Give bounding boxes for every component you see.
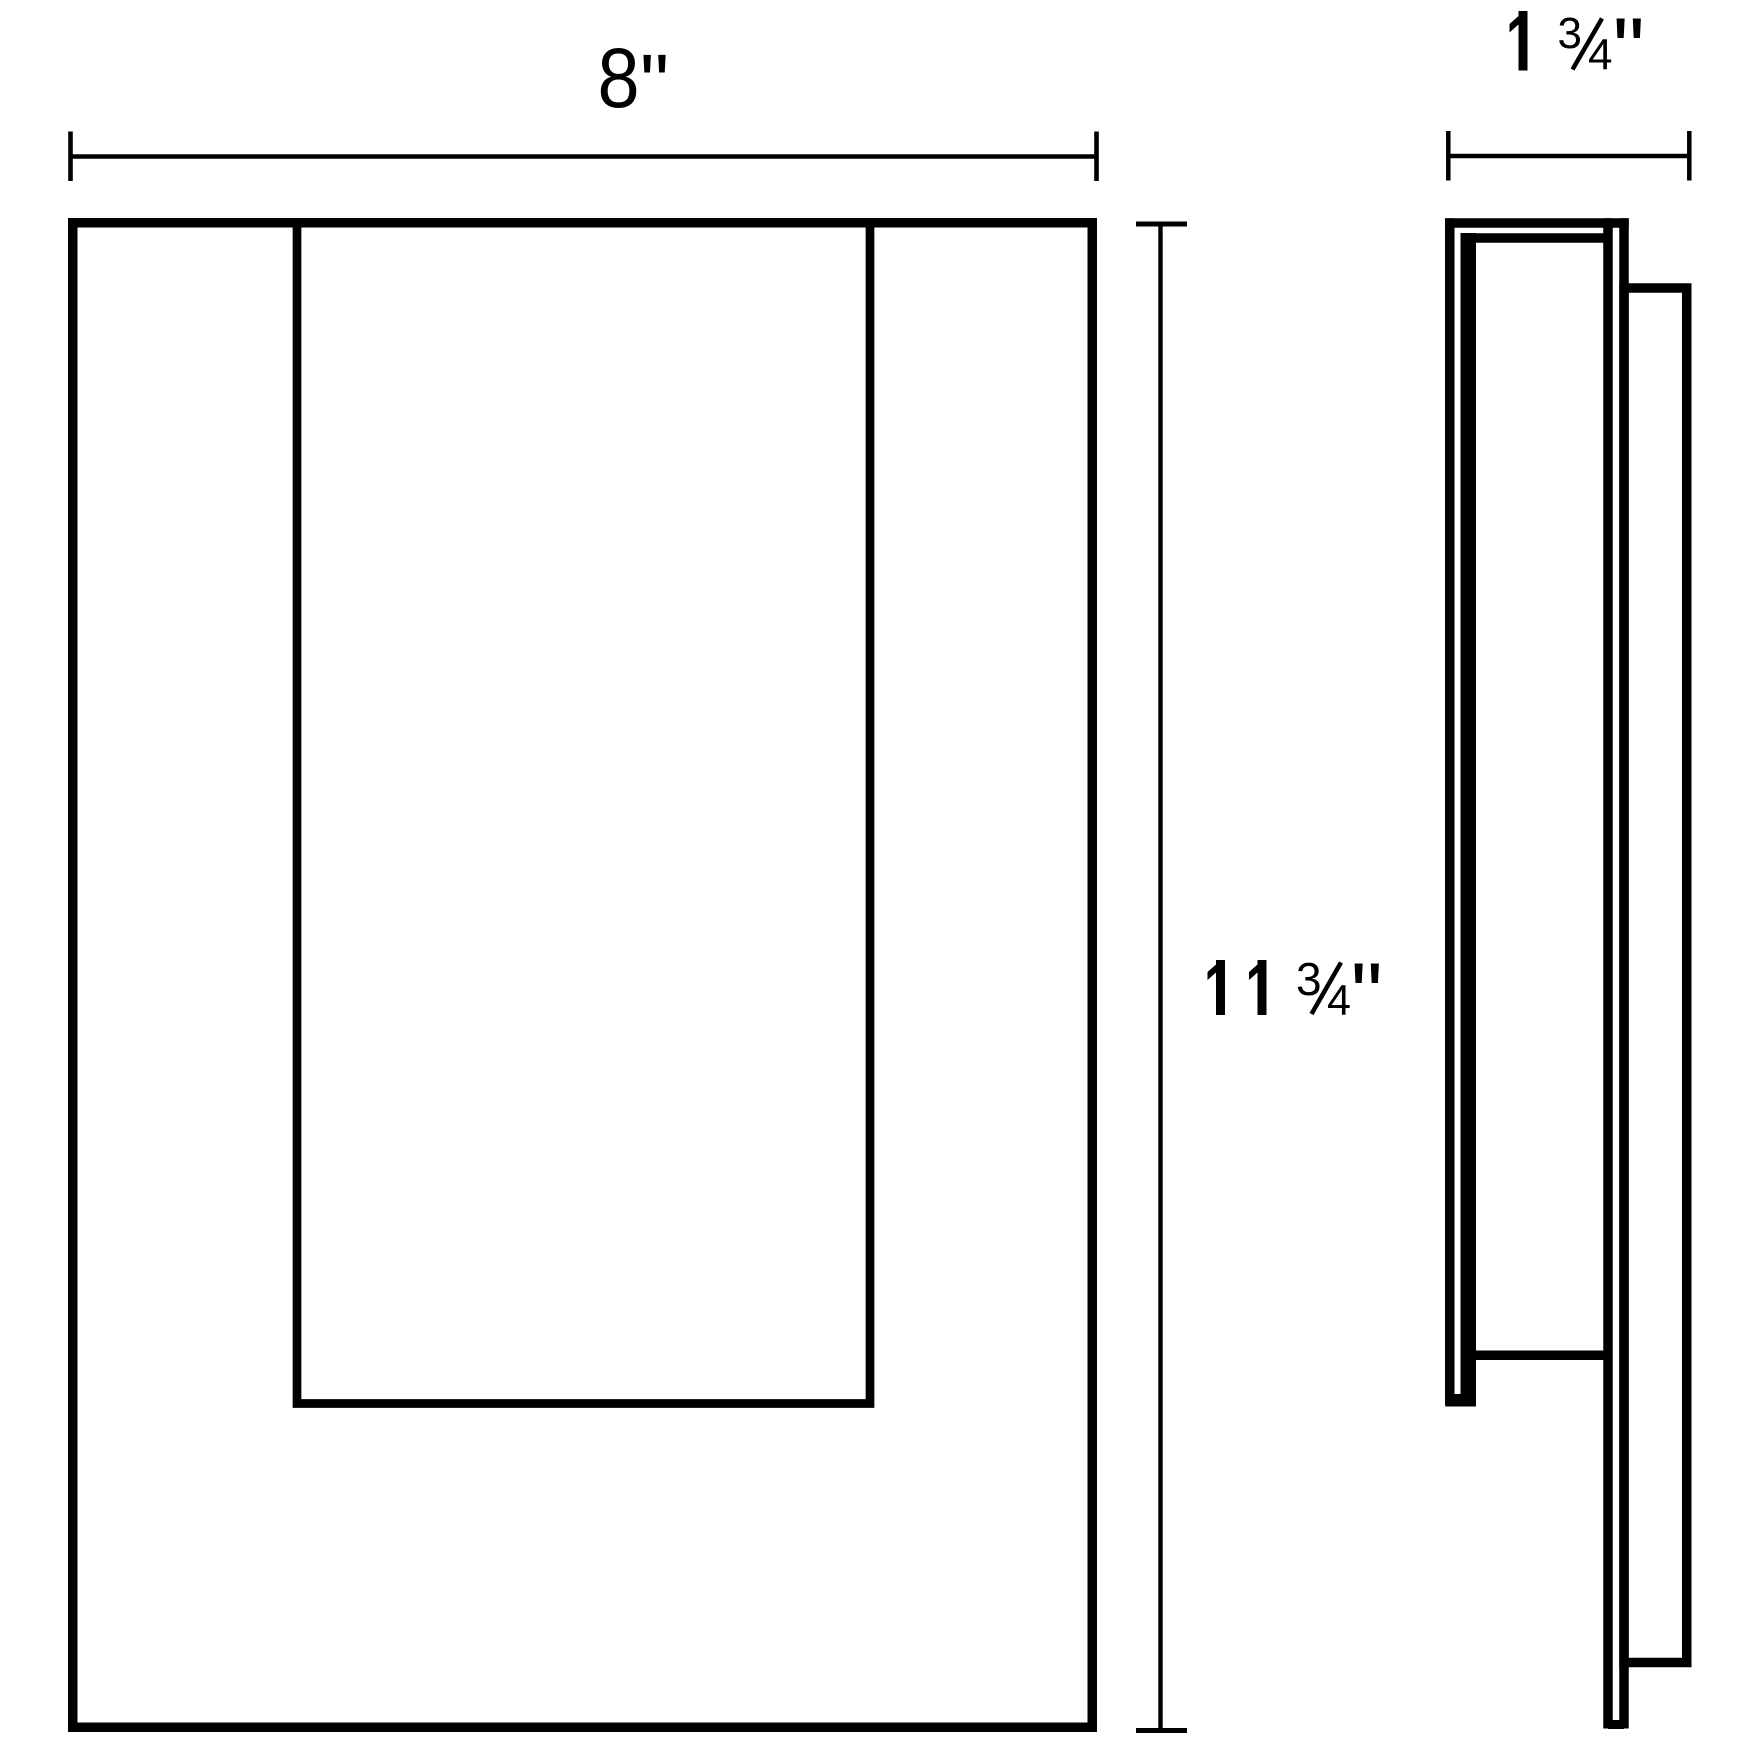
svg-text:8: 8 [598, 31, 640, 125]
svg-text:": " [1351, 945, 1383, 1045]
svg-text:": " [1613, 0, 1645, 100]
svg-text:": " [640, 38, 669, 129]
svg-text:3: 3 [1558, 9, 1582, 58]
svg-text:4: 4 [1327, 977, 1351, 1025]
svg-text:3: 3 [1296, 953, 1322, 1005]
svg-text:4: 4 [1588, 31, 1612, 80]
